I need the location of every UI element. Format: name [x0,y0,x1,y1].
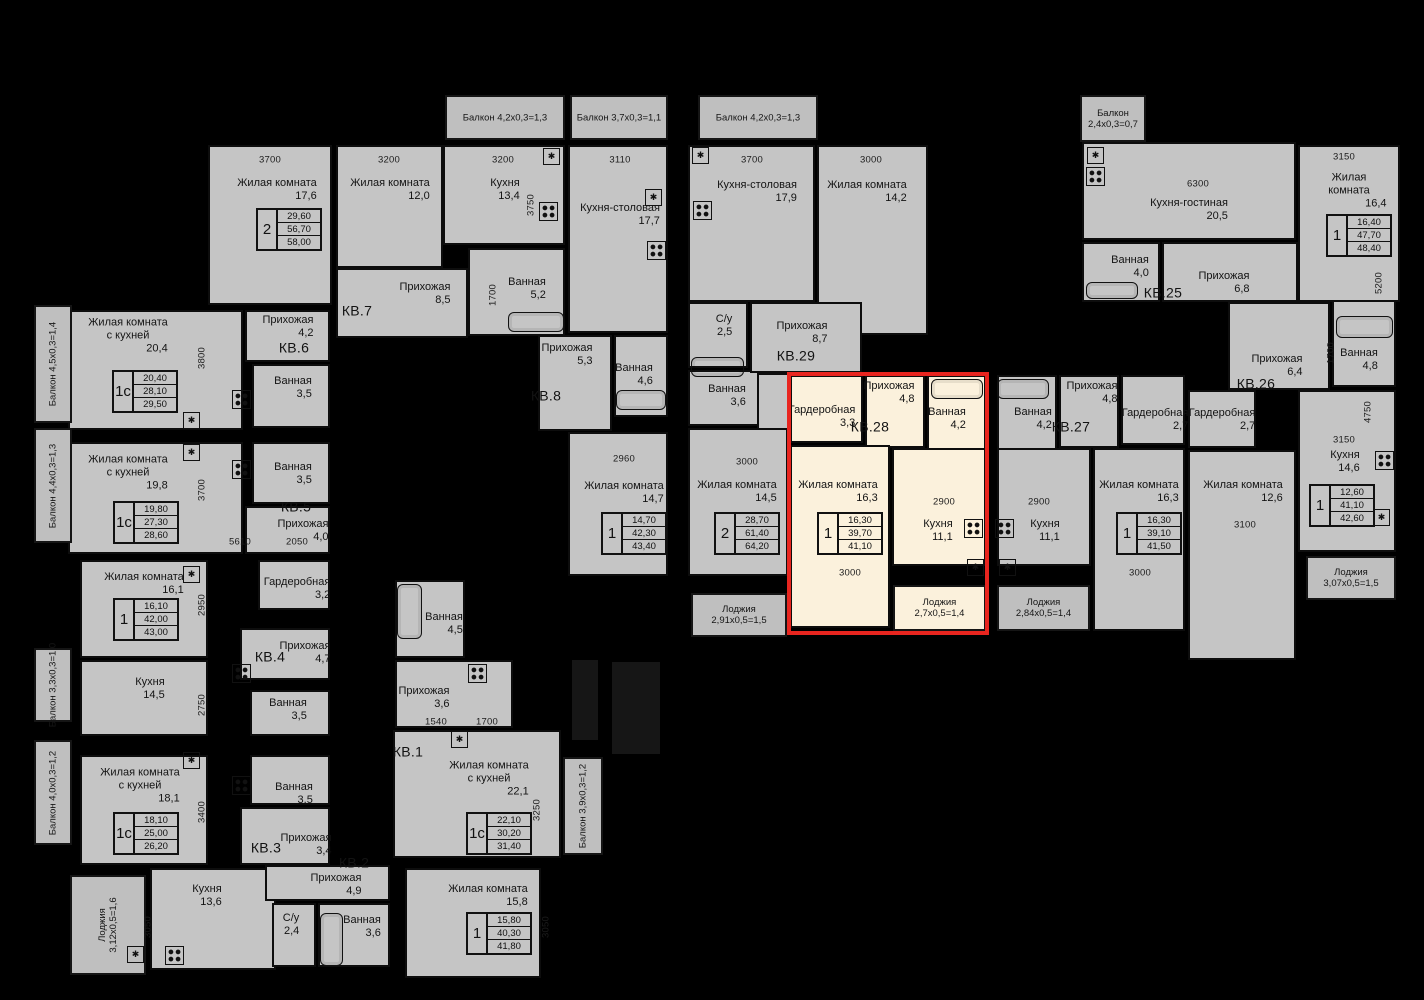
washer-icon: ✱ [183,566,200,583]
stove-icon [964,519,983,538]
bathtub-icon [397,584,422,639]
apartment-type: 1 [603,514,623,553]
room[interactable] [245,310,330,362]
room[interactable] [252,442,330,504]
area-value: 43,40 [623,540,665,553]
room[interactable] [250,690,330,736]
room[interactable] [272,903,316,967]
balcony [445,95,565,140]
balcony [34,740,72,845]
stove-icon [468,664,487,683]
apartment-summary-table: 114,7042,3043,40 [601,512,667,555]
room[interactable] [1082,142,1296,240]
area-value: 39,10 [1138,527,1180,540]
dimension-label: 3050 [540,916,551,938]
room[interactable] [1162,242,1298,302]
apartment-type: 1 [1328,216,1348,255]
room[interactable] [790,375,863,443]
area-value: 25,00 [135,827,177,840]
balcony [1306,556,1396,600]
area-value: 16,30 [1138,514,1180,527]
area-value: 56,70 [278,223,320,236]
area-value: 47,70 [1348,229,1390,242]
balcony [34,305,72,423]
washer-icon: ✱ [183,412,200,429]
room[interactable] [1059,375,1119,448]
room[interactable] [240,628,330,680]
area-value: 18,10 [135,814,177,827]
balcony [1080,95,1146,142]
room[interactable] [240,807,330,865]
area-value: 14,70 [623,514,665,527]
stove-icon [1086,167,1105,186]
apartment-summary-table: 229,6056,7058,00 [256,208,322,251]
bathtub-icon [931,379,983,399]
apartment-summary-table: 116,3039,1041,50 [1116,512,1182,555]
washer-icon: ✱ [127,946,144,963]
area-value: 58,00 [278,236,320,249]
room[interactable] [1121,375,1185,445]
apartment-type: 1с [115,814,135,853]
area-value: 48,40 [1348,242,1390,255]
stove-icon [232,390,251,409]
room[interactable] [1228,302,1330,390]
room[interactable] [245,506,330,554]
bathtub-icon [508,312,564,332]
room[interactable] [265,865,390,901]
bathtub-icon [691,357,744,377]
balcony [893,585,986,631]
area-value: 26,20 [135,840,177,853]
room[interactable] [757,373,790,430]
elevator-shaft [572,660,598,740]
room[interactable] [250,755,330,805]
apartment-type: 1 [1311,486,1331,525]
bathtub-icon [1086,282,1138,299]
area-value: 39,70 [839,527,881,540]
area-value: 16,40 [1348,216,1390,229]
apartment-summary-table: 1с18,1025,0026,20 [113,812,179,855]
area-value: 43,00 [135,626,177,639]
balcony [698,95,818,140]
room[interactable] [568,145,668,333]
balcony [34,648,72,722]
room[interactable] [80,660,208,736]
area-value: 41,10 [839,540,881,553]
room[interactable] [750,302,862,373]
room[interactable] [892,448,986,566]
room[interactable] [538,335,612,431]
room[interactable] [1188,450,1296,660]
stove-icon [995,519,1014,538]
apartment-type: 1с [114,372,134,411]
area-value: 19,80 [135,503,177,516]
washer-icon: ✱ [183,752,200,769]
stove-icon [539,202,558,221]
washer-icon: ✱ [183,444,200,461]
room[interactable] [1298,390,1396,552]
balcony [997,585,1090,631]
washer-icon: ✱ [645,189,662,206]
washer-icon: ✱ [1087,147,1104,164]
area-value: 29,50 [134,398,176,411]
apartment-summary-table: 228,7061,4064,20 [714,512,780,555]
room[interactable] [1332,295,1396,387]
bathtub-icon [616,390,666,410]
bathtub-icon [1336,316,1393,338]
area-value: 28,70 [736,514,778,527]
washer-icon: ✱ [692,147,709,164]
stove-icon [693,201,712,220]
floor-plan: Жилая комната17,6Жилая комната12,0Кухня1… [0,0,1424,1000]
room[interactable] [336,268,468,338]
area-value: 41,50 [1138,540,1180,553]
area-value: 27,30 [135,516,177,529]
bathtub-icon [997,379,1049,399]
area-value: 31,40 [488,840,530,853]
area-value: 16,10 [135,600,177,613]
apartment-summary-table: 115,8040,3041,80 [466,912,532,955]
washer-icon: ✱ [1373,509,1390,526]
washer-icon: ✱ [999,559,1016,576]
apartment-summary-table: 116,1042,0043,00 [113,598,179,641]
stove-icon [232,460,251,479]
room[interactable] [997,448,1091,566]
area-value: 41,80 [488,940,530,953]
washer-icon: ✱ [451,731,468,748]
apartment-summary-table: 1с19,8027,3028,60 [113,501,179,544]
room[interactable] [258,560,330,610]
area-value: 28,60 [135,529,177,542]
area-value: 42,00 [135,613,177,626]
area-value: 61,40 [736,527,778,540]
stove-icon [1375,451,1394,470]
washer-icon: ✱ [543,148,560,165]
apartment-type: 2 [258,210,278,249]
apartment-type: 1 [115,600,135,639]
apartment-type: 1с [115,503,135,542]
apartment-summary-table: 116,3039,7041,10 [817,512,883,555]
area-value: 41,10 [1331,499,1373,512]
room[interactable] [252,364,330,428]
apartment-type: 1 [1118,514,1138,553]
area-value: 64,20 [736,540,778,553]
stove-icon [647,241,666,260]
bathtub-icon [320,913,343,966]
room[interactable] [1188,390,1256,448]
washer-icon: ✱ [967,559,984,576]
apartment-type: 1 [468,914,488,953]
room[interactable] [865,375,925,448]
stove-icon [165,946,184,965]
area-value: 15,80 [488,914,530,927]
room[interactable] [336,145,443,268]
balcony [563,757,603,855]
balcony [691,593,787,637]
area-value: 42,30 [623,527,665,540]
stove-icon [232,776,251,795]
area-value: 22,10 [488,814,530,827]
area-value: 28,10 [134,385,176,398]
apartment-type: 1 [819,514,839,553]
elevator-shaft [612,662,660,754]
area-value: 29,60 [278,210,320,223]
apartment-summary-table: 112,6041,1042,60 [1309,484,1375,527]
area-value: 20,40 [134,372,176,385]
apartment-type: 1с [468,814,488,853]
room[interactable] [395,660,513,728]
room[interactable] [688,145,815,302]
area-value: 30,20 [488,827,530,840]
apartment-summary-table: 1с20,4028,1029,50 [112,370,178,413]
stove-icon [232,664,251,683]
balcony [570,95,668,140]
apartment-summary-table: 1с22,1030,2031,40 [466,812,532,855]
area-value: 42,60 [1331,512,1373,525]
balcony [34,428,72,543]
apartment-type: 2 [716,514,736,553]
room[interactable] [688,370,760,426]
apartment-summary-table: 116,4047,7048,40 [1326,214,1392,257]
area-value: 12,60 [1331,486,1373,499]
area-value: 40,30 [488,927,530,940]
area-value: 16,30 [839,514,881,527]
